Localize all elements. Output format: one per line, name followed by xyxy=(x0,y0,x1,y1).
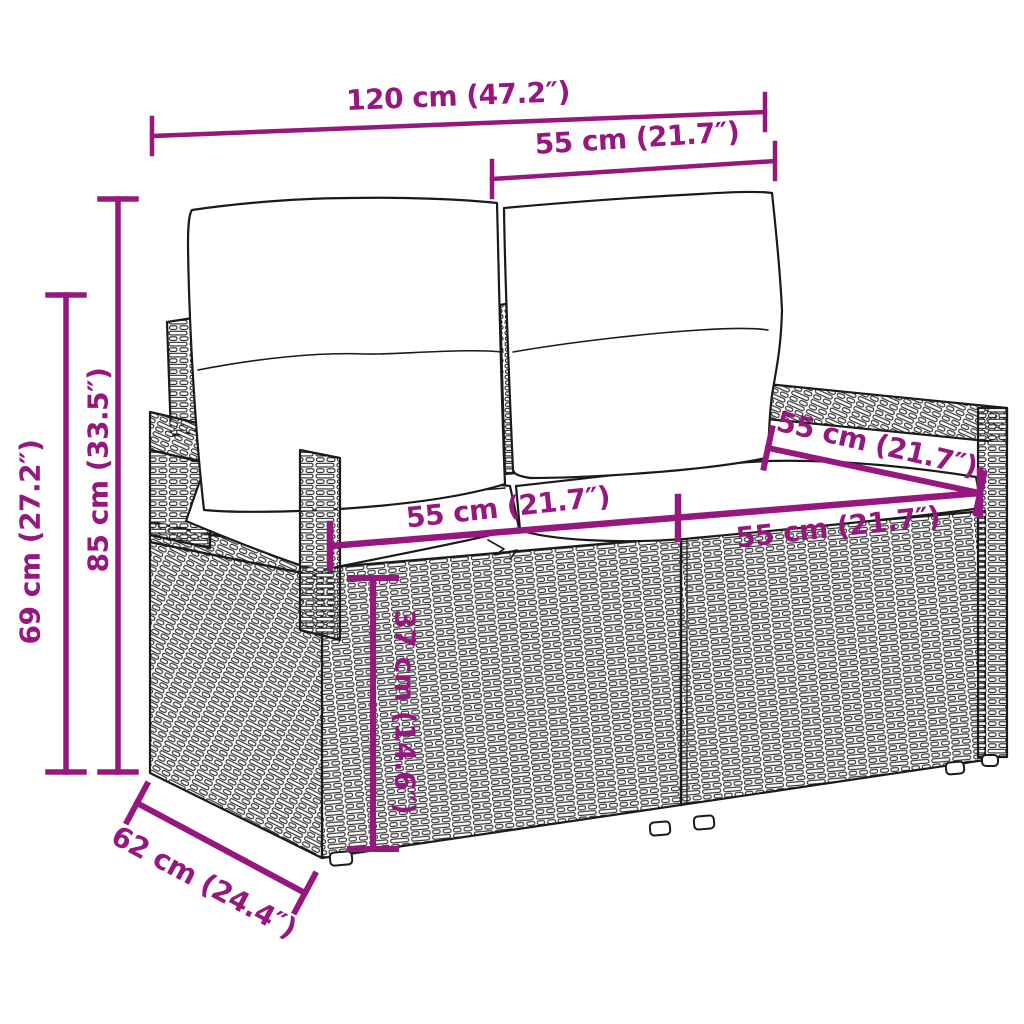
foot xyxy=(946,761,965,775)
dim-armrest-height-line xyxy=(48,295,84,772)
back-cushion-left xyxy=(188,198,505,512)
foot xyxy=(982,755,998,766)
diagram-canvas: 120 cm (47.2″) 55 cm (21.7″) 85 cm (33.5… xyxy=(0,0,1024,1024)
label-total-height: 85 cm (33.5″) xyxy=(82,368,115,573)
foot xyxy=(694,815,715,830)
base-side-face xyxy=(150,542,322,858)
foot xyxy=(330,851,353,866)
product-dimension-diagram: 120 cm (47.2″) 55 cm (21.7″) 85 cm (33.5… xyxy=(0,0,1024,1024)
foot xyxy=(650,821,671,836)
label-seat-height: 37 cm (14.6″) xyxy=(389,610,422,815)
right-armrest-column xyxy=(978,408,1007,757)
label-total-width: 120 cm (47.2″) xyxy=(345,75,570,117)
label-armrest-height: 69 cm (27.2″) xyxy=(14,440,47,645)
